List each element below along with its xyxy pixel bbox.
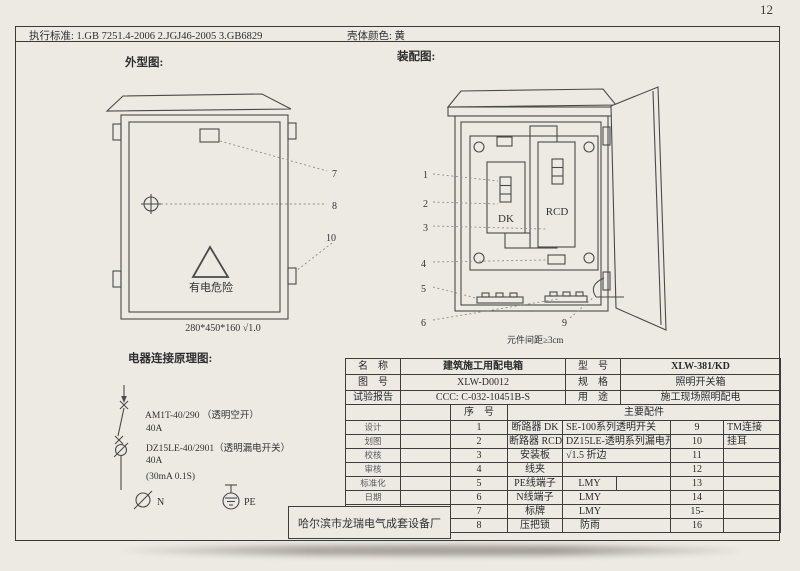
scan-shadow — [120, 545, 740, 556]
schematic-spec-line-1: AM1T-40/290 （透明空开） — [145, 407, 259, 421]
breaker-contact-bottom — [115, 436, 123, 444]
info-value: XLW-381/KD — [621, 359, 781, 375]
parts-header: 主要配件 — [508, 405, 781, 421]
sig-label: 标准化 — [346, 477, 401, 491]
sig-value — [401, 463, 451, 477]
page: { "page_number": "12", "header": { "stan… — [0, 0, 800, 571]
schematic-spec-line-4: 40A — [146, 456, 162, 466]
info-label: 规 格 — [566, 375, 621, 391]
assembly-section-title: 装配图: — [397, 48, 435, 64]
callout-7: 7 — [332, 169, 337, 180]
callout-6: 6 — [421, 318, 426, 329]
callout-3: 3 — [423, 223, 428, 234]
row-no: 1 — [451, 421, 508, 435]
part-note: 挂耳 — [724, 435, 781, 449]
row-no: 6 — [451, 491, 508, 505]
row-no: 8 — [451, 519, 508, 533]
part-name: N线端子 — [508, 491, 563, 505]
row-no2: 15- — [671, 505, 724, 519]
supply-line — [121, 385, 127, 403]
table-row: 审核 4 线夹 12 — [346, 463, 781, 477]
table-row: 图 号 XLW-D0012 规 格 照明开关箱 — [346, 375, 781, 391]
latch-right-top — [288, 123, 296, 139]
leader-line-7 — [220, 141, 327, 171]
sig-label: 日期 — [346, 491, 401, 505]
part-name: 安装板 — [508, 449, 563, 463]
part-spec-text: 防雨 — [563, 521, 617, 531]
table-row: 日期 6 N线端子 LMY 14 — [346, 491, 781, 505]
sig-value — [401, 477, 451, 491]
neutral-symbol — [134, 491, 152, 509]
seq-header: 序 号 — [451, 405, 508, 421]
door-lock — [141, 194, 161, 214]
standards-bar: 执行标准: 1.GB 7251.4-2006 2.JGJ46-2005 3.GB… — [16, 27, 779, 42]
table-row: 划图 2 断路器 RCD DZ15LE-透明系列漏电开 10 挂耳 — [346, 435, 781, 449]
outline-section-title: 外型图: — [125, 54, 163, 70]
callout-8: 8 — [332, 201, 337, 212]
schematic-spec-line-5: (30mA 0.1S) — [146, 472, 195, 482]
dk-label: DK — [498, 213, 514, 225]
row-no: 2 — [451, 435, 508, 449]
row-no: 7 — [451, 505, 508, 519]
row-no: 5 — [451, 477, 508, 491]
callout-2: 2 — [423, 199, 428, 210]
callout-1: 1 — [423, 170, 428, 181]
row-no2: 11 — [671, 449, 724, 463]
part-spec — [563, 463, 671, 477]
row-no2: 13 — [671, 477, 724, 491]
part-name: 断路器 DK — [508, 421, 563, 435]
din-rail-foot — [505, 233, 530, 248]
part-spec: 防雨 — [563, 519, 671, 533]
assembly-roof — [448, 89, 616, 107]
callout-4: 4 — [421, 259, 426, 270]
sig-label: 划图 — [346, 435, 401, 449]
info-value: CCC: C-032-10451B-S — [401, 391, 566, 405]
callout-5: 5 — [421, 284, 426, 295]
empty-cell — [401, 405, 451, 421]
row-no2: 10 — [671, 435, 724, 449]
company-box: 哈尔滨市龙瑞电气成套设备厂 — [288, 506, 451, 539]
name-plate — [200, 129, 219, 142]
outline-drawing: 7 8 10 有电危险 280*450*160 √1.0 — [85, 85, 350, 340]
rcd-label: RCD — [546, 206, 569, 218]
hinge-left-bottom — [113, 271, 121, 287]
roof-fascia — [448, 107, 616, 116]
info-value: 施工现场照明配电 — [621, 391, 781, 405]
assembly-drawing: DK RCD 1 2 3 4 — [415, 80, 685, 352]
part-note — [724, 519, 781, 533]
table-row: 校核 3 安装板 √1.5 折边 11 — [346, 449, 781, 463]
sig-value — [401, 449, 451, 463]
part-spec-text: LMY — [563, 493, 617, 503]
row-no2: 12 — [671, 463, 724, 477]
pe-label: PE — [244, 497, 256, 508]
dimension-text: 280*450*160 √1.0 — [185, 323, 261, 334]
part-note — [724, 463, 781, 477]
sig-value — [401, 491, 451, 505]
info-value: XLW-D0012 — [401, 375, 566, 391]
sig-value — [401, 421, 451, 435]
sig-label: 设计 — [346, 421, 401, 435]
table-row: 标准化 5 PE线端子 LMY 13 — [346, 477, 781, 491]
scanned-page: 12 执行标准: 1.GB 7251.4-2006 2.JGJ46-2005 3… — [0, 0, 800, 571]
sig-label: 审核 — [346, 463, 401, 477]
part-note — [724, 477, 781, 491]
table-header-row: 序 号 主要配件 — [346, 405, 781, 421]
table-row: 设计 1 断路器 DK SE-100系列透明开关 9 TM连接 — [346, 421, 781, 435]
cabinet-roof — [107, 94, 291, 111]
empty-cell — [346, 405, 401, 421]
neutral-label: N — [157, 497, 164, 508]
page-number: 12 — [760, 2, 773, 18]
company-name: 哈尔滨市龙瑞电气成套设备厂 — [298, 515, 441, 531]
shell-color-text: 壳体颜色: 黄 — [347, 28, 405, 43]
part-note — [724, 491, 781, 505]
info-table: 名 称 建筑施工用配电箱 型 号 XLW-381/KD 图 号 XLW-D001… — [345, 358, 781, 405]
part-note — [724, 449, 781, 463]
open-door — [611, 87, 666, 330]
info-label: 用 途 — [566, 391, 621, 405]
sig-value — [401, 435, 451, 449]
standards-text: 执行标准: 1.GB 7251.4-2006 2.JGJ46-2005 3.GB… — [29, 28, 262, 43]
schematic-spec-line-2: 40A — [146, 424, 162, 434]
part-note — [724, 505, 781, 519]
part-spec-text: LMY — [563, 507, 617, 517]
warning-triangle — [193, 247, 228, 277]
latch-right-bottom — [288, 268, 296, 284]
part-note: TM连接 — [724, 421, 781, 435]
info-value: 照明开关箱 — [621, 375, 781, 391]
assembly-body — [455, 116, 608, 311]
part-spec-extra — [617, 477, 671, 491]
breaker-dk: DK — [487, 162, 525, 233]
row-no: 3 — [451, 449, 508, 463]
row-no2: 16 — [671, 519, 724, 533]
row-no2: 9 — [671, 421, 724, 435]
part-spec: SE-100系列透明开关 — [563, 421, 671, 435]
info-label: 名 称 — [346, 359, 401, 375]
callout-9: 9 — [562, 318, 567, 329]
hinge-left-top — [113, 124, 121, 140]
table-row: 试验报告 CCC: C-032-10451B-S 用 途 施工现场照明配电 — [346, 391, 781, 405]
info-value: 建筑施工用配电箱 — [401, 359, 566, 375]
callout-10: 10 — [326, 233, 336, 244]
info-label: 型 号 — [566, 359, 621, 375]
pe-earth-symbol — [223, 485, 239, 509]
part-name: 线夹 — [508, 463, 563, 477]
part-name: 标牌 — [508, 505, 563, 519]
part-name: PE线端子 — [508, 477, 563, 491]
table-row: 名 称 建筑施工用配电箱 型 号 XLW-381/KD — [346, 359, 781, 375]
warning-text: 有电危险 — [189, 280, 233, 294]
schematic-section-title: 电器连接原理图: — [128, 350, 212, 366]
row-no: 4 — [451, 463, 508, 477]
part-spec: DZ15LE-透明系列漏电开 — [563, 435, 671, 449]
spacing-note: 元件间距≥3cm — [507, 334, 563, 345]
part-name: 断路器 RCD — [508, 435, 563, 449]
leader-line-10 — [296, 243, 332, 271]
breaker-rcd: RCD — [538, 142, 575, 247]
row-no2: 14 — [671, 491, 724, 505]
info-label: 试验报告 — [346, 391, 401, 405]
info-label: 图 号 — [346, 375, 401, 391]
schematic-spec-line-3: DZ15LE-40/2901（透明漏电开关） — [146, 440, 290, 454]
part-spec: LMY — [563, 477, 617, 491]
part-spec: LMY — [563, 505, 671, 519]
switch-blade — [118, 408, 124, 436]
sig-label: 校核 — [346, 449, 401, 463]
part-spec: LMY — [563, 491, 671, 505]
rcd-symbol — [114, 443, 128, 457]
part-spec: √1.5 折边 — [563, 449, 671, 463]
part-name: 压把锁 — [508, 519, 563, 533]
